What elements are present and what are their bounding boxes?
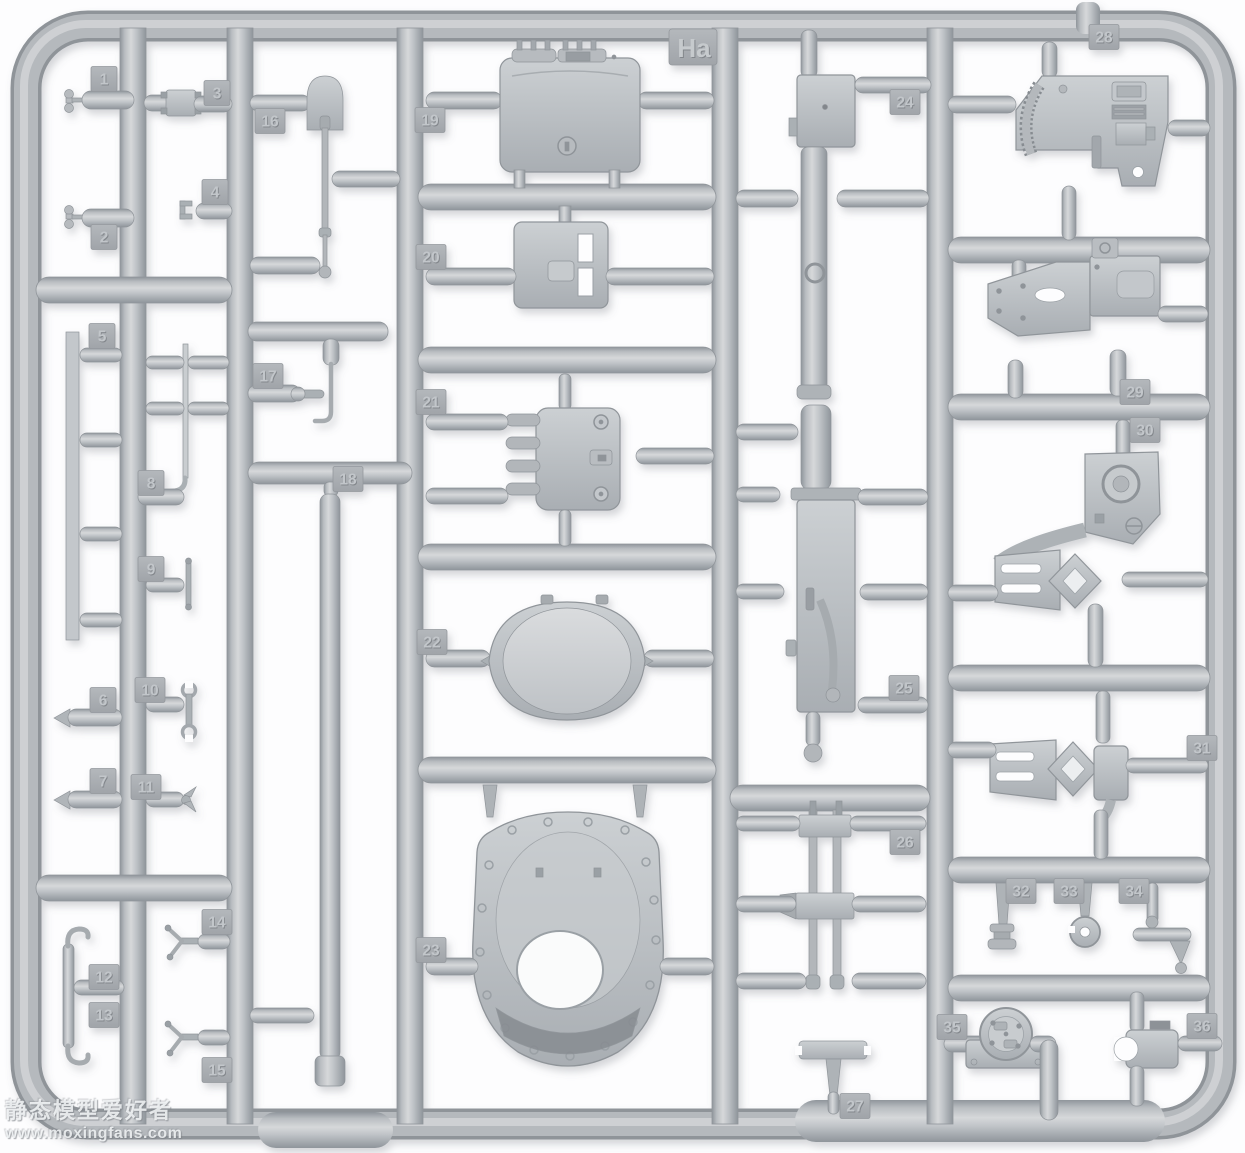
sprue-photo: Ha Ha 1122334455667788991010111112121313… <box>0 0 1245 1153</box>
runner-right-3 <box>948 665 1210 691</box>
part-tag-11: 1111 <box>131 775 161 800</box>
svg-text:33: 33 <box>1060 884 1078 901</box>
part-tag-30: 3030 <box>1130 418 1160 443</box>
part-tag-35: 3535 <box>937 1015 967 1040</box>
svg-text:17: 17 <box>259 369 276 386</box>
svg-text:36: 36 <box>1193 1019 1211 1036</box>
runner-vertical-4 <box>712 28 738 1124</box>
runner-right-5 <box>948 975 1210 1001</box>
svg-text:19: 19 <box>421 113 439 130</box>
svg-text:16: 16 <box>261 114 279 131</box>
part-tag-14: 1414 <box>202 910 232 935</box>
svg-text:5: 5 <box>98 329 107 346</box>
svg-text:2: 2 <box>100 230 109 247</box>
part-tag-6: 66 <box>90 688 116 713</box>
part-tag-32: 3232 <box>1006 879 1036 904</box>
svg-text:21: 21 <box>422 395 440 412</box>
svg-text:24: 24 <box>896 95 914 112</box>
part-tag-19: 1919 <box>415 108 445 133</box>
svg-text:1: 1 <box>100 72 109 89</box>
svg-text:9: 9 <box>147 562 156 579</box>
part-tag-20: 2020 <box>416 245 446 270</box>
runner-mid-2 <box>418 347 716 373</box>
part-tag-8: 88 <box>138 471 164 496</box>
part-tag-33: 3333 <box>1054 879 1084 904</box>
part-tag-31: 3131 <box>1187 736 1217 761</box>
sprue-photo-svg: Ha Ha 1122334455667788991010111112121313… <box>0 0 1245 1153</box>
svg-text:32: 32 <box>1012 884 1029 901</box>
part-tag-22: 2222 <box>417 630 447 655</box>
runner-left-upper <box>36 277 232 303</box>
svg-text:15: 15 <box>208 1063 226 1080</box>
part-tag-28: 2828 <box>1089 25 1119 50</box>
svg-text:10: 10 <box>141 683 158 700</box>
part-tag-2: 22 <box>91 225 117 250</box>
svg-text:22: 22 <box>423 635 440 652</box>
part-tag-15: 1515 <box>202 1058 232 1083</box>
part-tag-1: 11 <box>91 67 117 92</box>
part-tag-25: 2525 <box>889 676 919 701</box>
svg-text:11: 11 <box>138 780 155 797</box>
frame-wide-tab <box>258 1112 393 1148</box>
svg-text:20: 20 <box>422 250 439 267</box>
part-tag-7: 77 <box>90 769 116 794</box>
runner-arm-c <box>248 462 412 484</box>
runner-col4 <box>730 785 930 811</box>
svg-text:4: 4 <box>211 185 220 202</box>
svg-text:18: 18 <box>339 472 357 489</box>
runner-vertical-2 <box>227 28 253 1124</box>
runner-left-lower <box>36 875 232 901</box>
runner-mid-3 <box>418 544 716 570</box>
part-tag-29: 2929 <box>1120 380 1150 405</box>
runner-mid-4 <box>418 757 716 783</box>
part-tag-13: 1313 <box>89 1003 119 1028</box>
svg-text:3: 3 <box>213 86 222 103</box>
part-tag-36: 3636 <box>1187 1014 1217 1039</box>
part-tag-9: 99 <box>138 557 164 582</box>
runner-arm-a <box>248 322 388 341</box>
svg-text:34: 34 <box>1125 884 1143 901</box>
svg-text:26: 26 <box>896 835 914 852</box>
part-tag-21: 2121 <box>416 390 446 415</box>
svg-text:13: 13 <box>95 1008 113 1025</box>
runner-right-2 <box>948 394 1210 420</box>
part-tag-24: 2424 <box>890 90 920 115</box>
svg-text:35: 35 <box>943 1020 961 1037</box>
svg-text:12: 12 <box>95 970 112 987</box>
part-tag-12: 1212 <box>89 965 119 990</box>
part-tag-23: 2323 <box>416 938 446 963</box>
svg-text:30: 30 <box>1136 423 1153 440</box>
part-tag-18: 1818 <box>333 467 363 492</box>
runner-right-1 <box>948 237 1210 263</box>
svg-text:7: 7 <box>99 774 108 791</box>
svg-text:27: 27 <box>846 1099 863 1116</box>
svg-text:29: 29 <box>1126 385 1144 402</box>
part-tag-10: 1010 <box>135 678 165 703</box>
sprue-code-tag: Ha Ha <box>669 29 717 65</box>
svg-text:8: 8 <box>147 476 156 493</box>
part-tag-17: 1717 <box>253 364 283 389</box>
runner-vertical-5 <box>927 28 953 1124</box>
svg-text:25: 25 <box>895 681 913 698</box>
svg-text:6: 6 <box>99 693 108 710</box>
svg-text:28: 28 <box>1095 30 1113 47</box>
sprue-code-text: Ha <box>677 33 711 63</box>
svg-text:23: 23 <box>422 943 440 960</box>
part-tag-4: 44 <box>202 180 228 205</box>
part-tag-16: 1616 <box>255 109 285 134</box>
part-tag-34: 3434 <box>1119 879 1149 904</box>
part-tag-5: 55 <box>89 324 115 349</box>
svg-text:31: 31 <box>1193 741 1211 758</box>
part-tag-27: 2727 <box>840 1094 870 1119</box>
svg-text:14: 14 <box>208 915 226 932</box>
part-tag-3: 33 <box>204 81 230 106</box>
part-tag-26: 2626 <box>890 830 920 855</box>
